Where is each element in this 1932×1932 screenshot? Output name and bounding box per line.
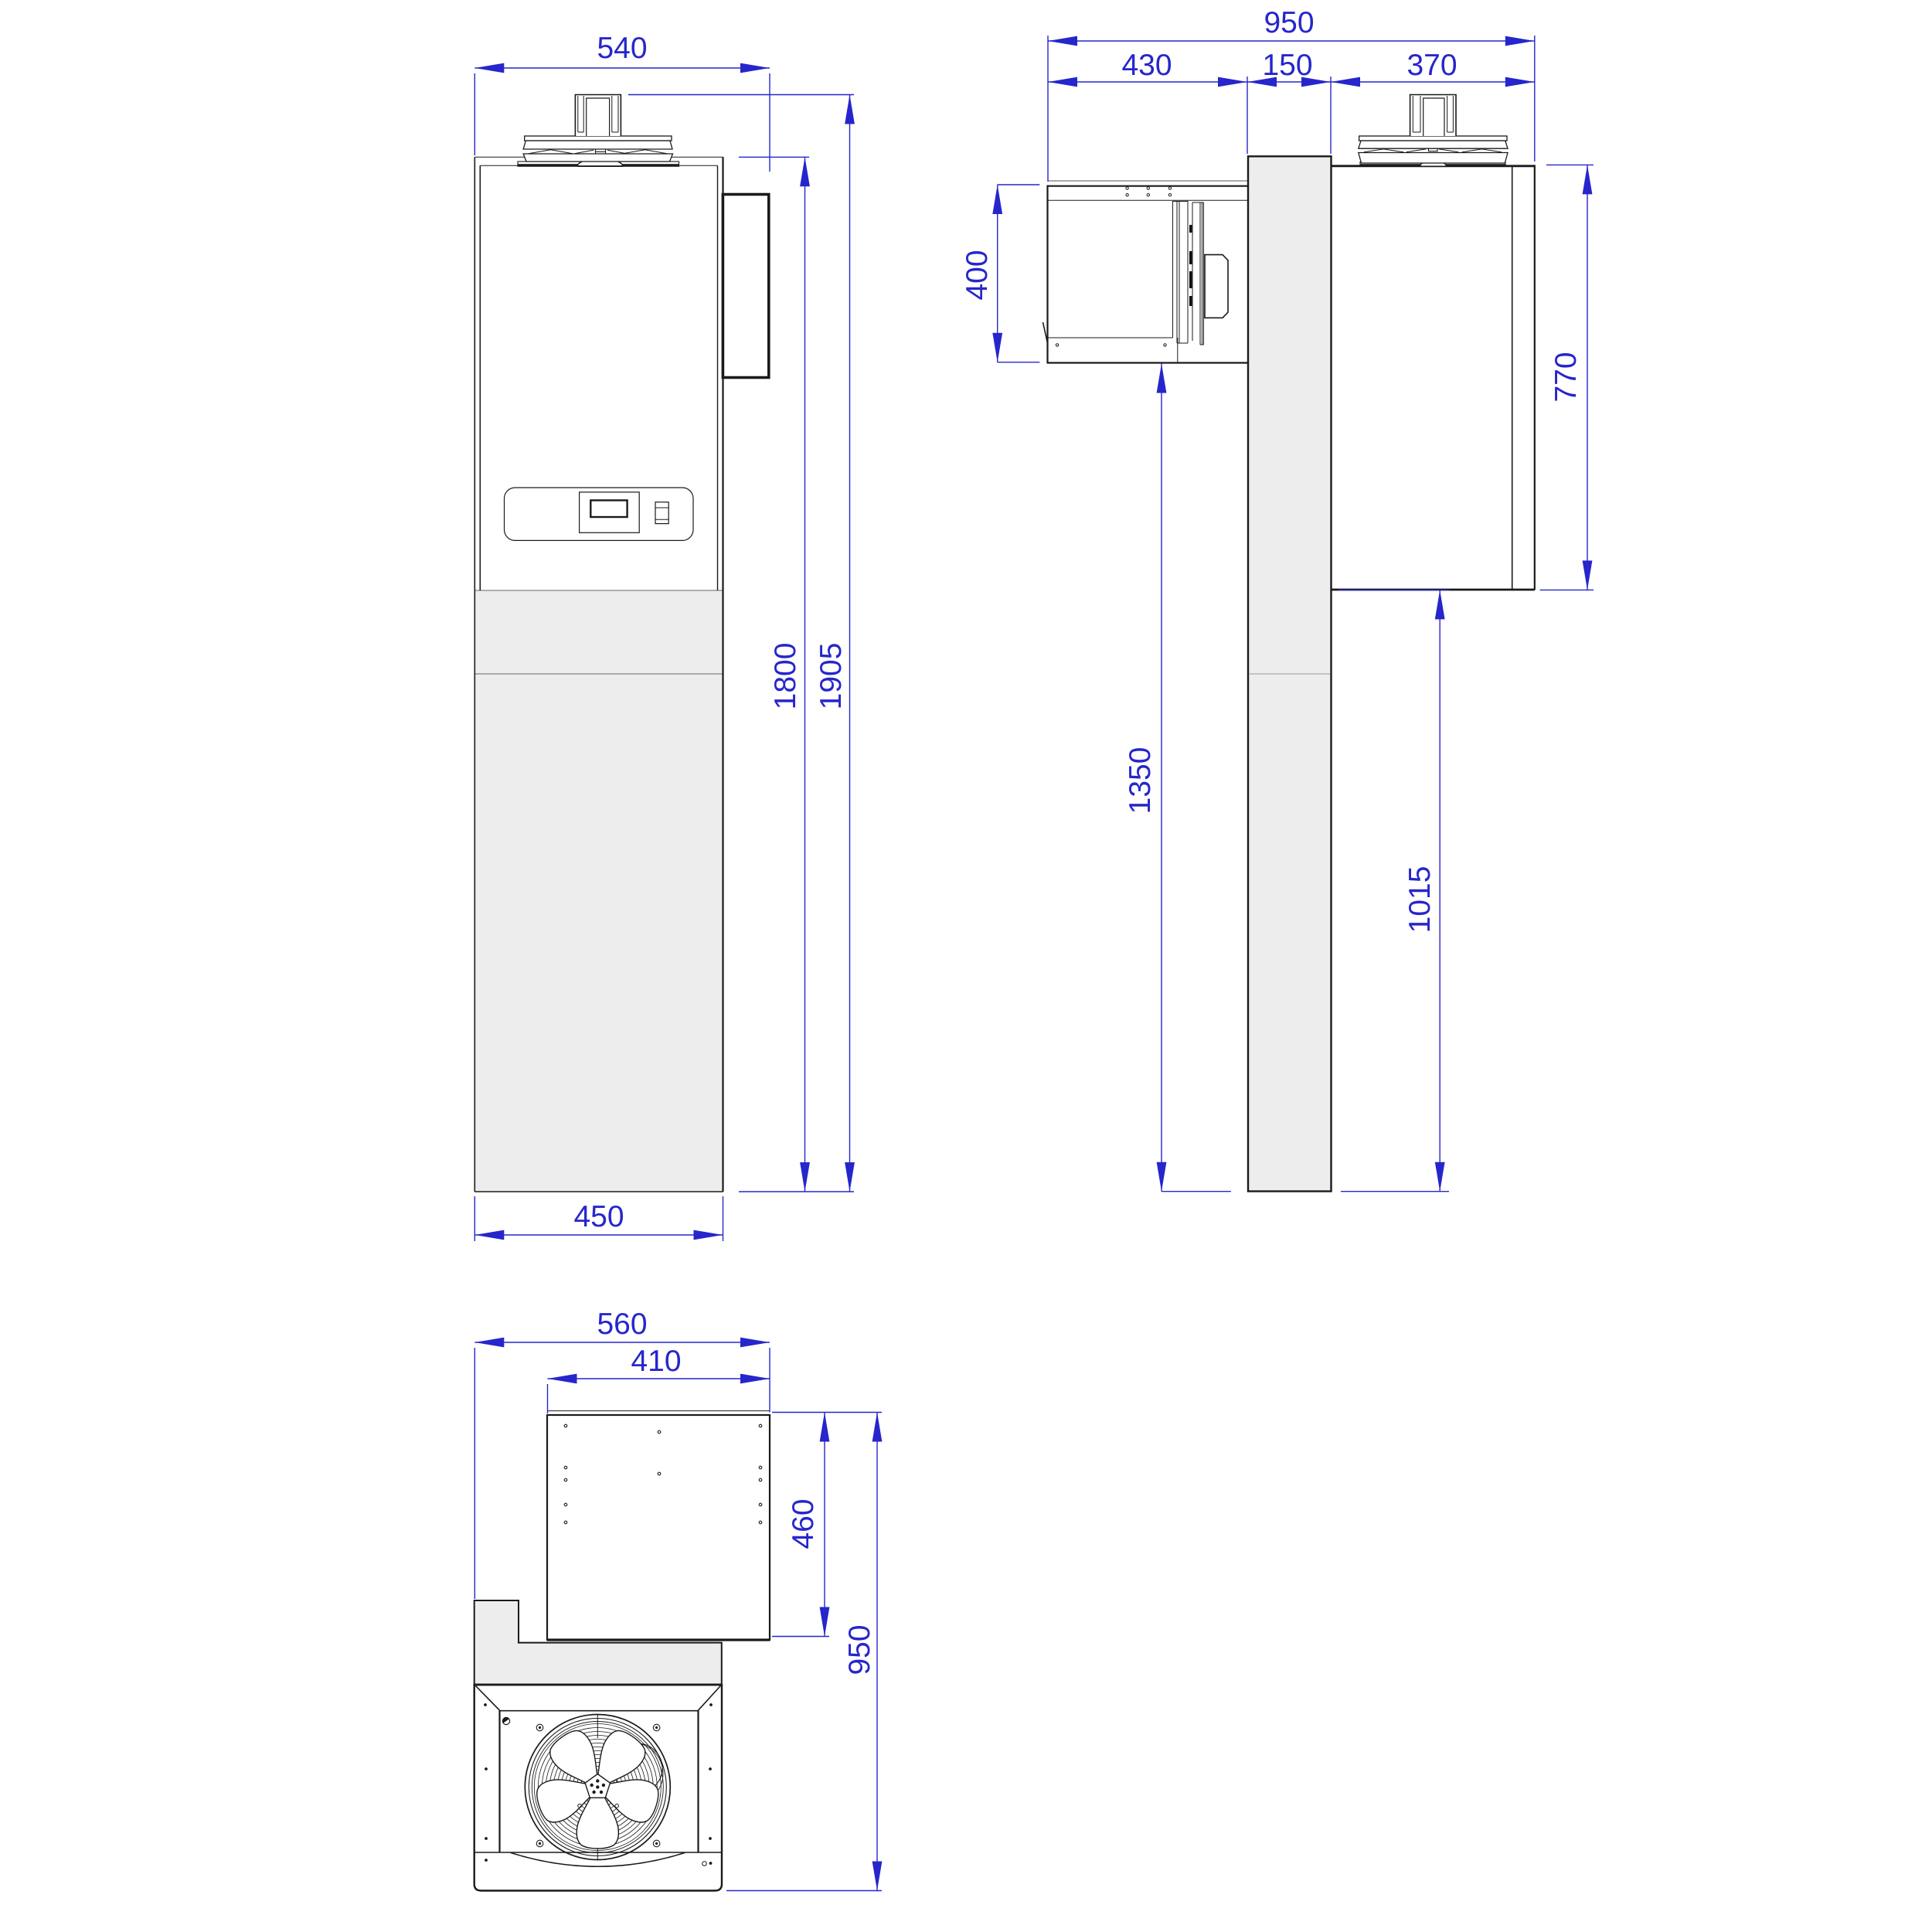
svg-text:950: 950 <box>1264 6 1314 39</box>
svg-text:560: 560 <box>597 1308 647 1341</box>
svg-text:150: 150 <box>1262 49 1312 82</box>
svg-text:770: 770 <box>1549 352 1583 402</box>
svg-text:540: 540 <box>597 32 647 65</box>
svg-text:1800: 1800 <box>769 643 802 710</box>
svg-text:430: 430 <box>1121 49 1172 82</box>
svg-text:450: 450 <box>573 1200 624 1233</box>
svg-text:370: 370 <box>1406 49 1457 82</box>
svg-text:950: 950 <box>843 1624 876 1675</box>
svg-text:1905: 1905 <box>815 643 848 710</box>
svg-text:460: 460 <box>787 1498 820 1549</box>
svg-text:1350: 1350 <box>1124 747 1157 815</box>
svg-text:1015: 1015 <box>1403 866 1437 934</box>
svg-text:410: 410 <box>631 1345 681 1378</box>
svg-text:400: 400 <box>961 250 994 300</box>
